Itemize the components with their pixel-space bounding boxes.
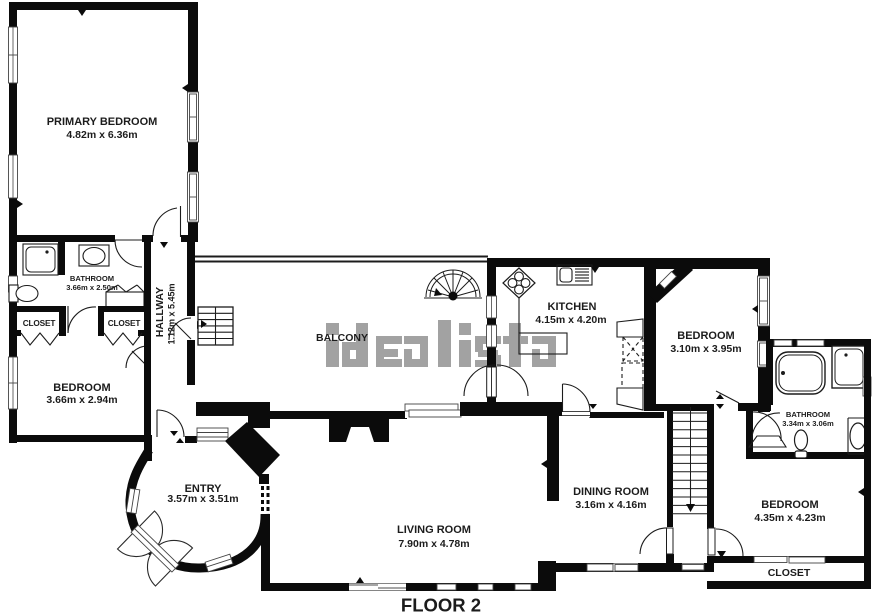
svg-text:DINING ROOM: DINING ROOM <box>573 486 649 498</box>
svg-text:4.35m x 4.23m: 4.35m x 4.23m <box>754 512 825 524</box>
svg-text:BEDROOM: BEDROOM <box>53 382 110 394</box>
svg-text:4.15m x 4.20m: 4.15m x 4.20m <box>535 314 606 326</box>
svg-text:7.90m x 4.78m: 7.90m x 4.78m <box>398 538 469 550</box>
svg-text:LIVING ROOM: LIVING ROOM <box>397 524 471 536</box>
svg-text:3.66m x 2.50m: 3.66m x 2.50m <box>66 283 118 292</box>
svg-text:CLOSET: CLOSET <box>108 318 141 328</box>
svg-text:3.10m x 3.95m: 3.10m x 3.95m <box>670 343 741 355</box>
svg-text:BEDROOM: BEDROOM <box>677 330 734 342</box>
svg-text:PRIMARY BEDROOM: PRIMARY BEDROOM <box>47 116 158 128</box>
svg-text:3.66m x 2.94m: 3.66m x 2.94m <box>46 394 117 406</box>
svg-text:BALCONY: BALCONY <box>316 332 368 344</box>
svg-text:3.57m x 3.51m: 3.57m x 3.51m <box>167 493 238 505</box>
svg-text:4.82m x 6.36m: 4.82m x 6.36m <box>66 129 137 141</box>
svg-text:3.16m x 4.16m: 3.16m x 4.16m <box>575 499 646 511</box>
svg-text:CLOSET: CLOSET <box>23 318 56 328</box>
svg-text:KITCHEN: KITCHEN <box>548 301 597 313</box>
svg-text:BATHROOM: BATHROOM <box>70 274 114 283</box>
svg-text:3.34m x 3.06m: 3.34m x 3.06m <box>782 419 834 428</box>
svg-text:HALLWAY: HALLWAY <box>154 287 166 337</box>
svg-text:BEDROOM: BEDROOM <box>761 499 818 511</box>
svg-text:CLOSET: CLOSET <box>768 567 811 579</box>
svg-text:1.12m x 5.45m: 1.12m x 5.45m <box>167 283 177 344</box>
svg-text:FLOOR 2: FLOOR 2 <box>401 595 481 612</box>
svg-text:BATHROOM: BATHROOM <box>786 410 830 419</box>
